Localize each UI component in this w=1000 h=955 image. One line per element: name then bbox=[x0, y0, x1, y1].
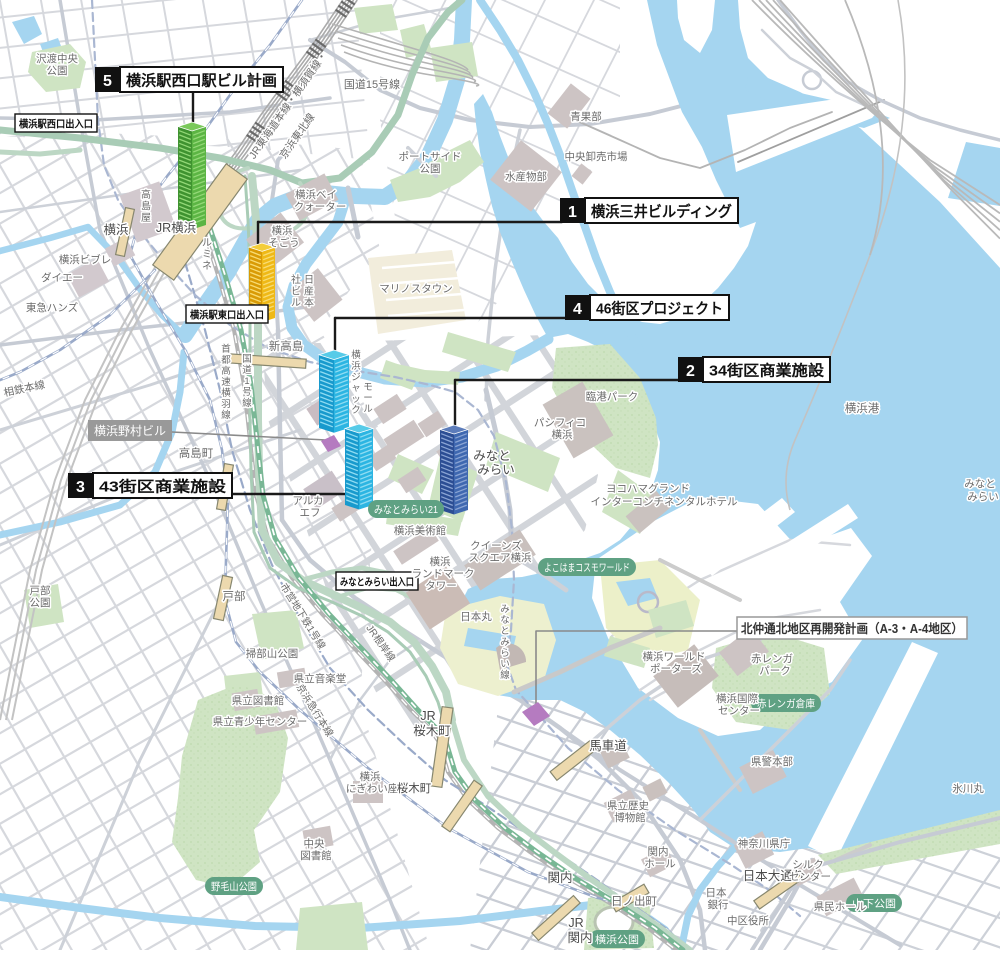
svg-text:日本: 日本 bbox=[706, 886, 727, 899]
svg-text:県立歴史: 県立歴史 bbox=[607, 799, 649, 812]
svg-text:みなとみらい出入口: みなとみらい出入口 bbox=[340, 576, 414, 589]
svg-text:日産本: 日産本 bbox=[304, 275, 314, 309]
svg-text:横浜: 横浜 bbox=[360, 770, 381, 783]
svg-text:桜木町: 桜木町 bbox=[413, 724, 451, 738]
svg-text:アルカ: アルカ bbox=[292, 495, 323, 507]
svg-text:横浜美術館: 横浜美術館 bbox=[394, 524, 447, 537]
svg-text:ヨコハマグランド: ヨコハマグランド bbox=[606, 482, 690, 495]
svg-text:神奈川県庁: 神奈川県庁 bbox=[738, 837, 791, 850]
svg-text:モール: モール bbox=[363, 382, 373, 415]
svg-text:公園: 公園 bbox=[420, 163, 441, 175]
svg-text:東急ハンズ: 東急ハンズ bbox=[26, 301, 78, 314]
svg-text:関内: 関内 bbox=[547, 871, 572, 885]
svg-text:タワー: タワー bbox=[425, 580, 457, 592]
svg-text:野毛山公園: 野毛山公園 bbox=[211, 881, 257, 893]
svg-text:赤レンガ: 赤レンガ bbox=[751, 653, 793, 665]
svg-text:高島屋: 高島屋 bbox=[141, 188, 151, 224]
svg-text:みなとみらい21: みなとみらい21 bbox=[374, 504, 438, 516]
svg-text:横浜: 横浜 bbox=[103, 223, 128, 237]
svg-text:中央: 中央 bbox=[304, 837, 325, 850]
svg-text:氷川丸: 氷川丸 bbox=[952, 782, 984, 795]
svg-text:国道15号線: 国道15号線 bbox=[344, 77, 400, 91]
svg-text:青果部: 青果部 bbox=[570, 110, 602, 123]
svg-text:県民ホール: 県民ホール bbox=[814, 901, 867, 913]
svg-text:横浜ジャック: 横浜ジャック bbox=[351, 349, 361, 416]
svg-text:パシフィコ: パシフィコ bbox=[534, 417, 586, 429]
svg-text:よこはまコスモワールド: よこはまコスモワールド bbox=[544, 562, 630, 574]
svg-text:インターコンチネンタルホテル: インターコンチネンタルホテル bbox=[591, 496, 738, 508]
svg-text:ホール: ホール bbox=[644, 858, 676, 870]
svg-text:センター: センター bbox=[789, 871, 831, 883]
svg-text:ランドマーク: ランドマーク bbox=[412, 568, 475, 580]
svg-text:馬車道: 馬車道 bbox=[589, 739, 627, 753]
svg-text:関内: 関内 bbox=[648, 845, 669, 858]
svg-text:横浜港: 横浜港 bbox=[845, 401, 880, 415]
svg-text:横浜駅西口出入口: 横浜駅西口出入口 bbox=[19, 118, 93, 131]
svg-text:46街区プロジェクト: 46街区プロジェクト bbox=[596, 300, 723, 318]
svg-text:2: 2 bbox=[686, 363, 695, 380]
svg-text:スクエア横浜: スクエア横浜 bbox=[469, 551, 532, 564]
svg-text:横浜駅東口出入口: 横浜駅東口出入口 bbox=[190, 309, 264, 322]
svg-text:横浜ワールド: 横浜ワールド bbox=[643, 650, 706, 663]
svg-text:みなと: みなと bbox=[473, 449, 511, 463]
svg-text:JR横浜: JR横浜 bbox=[156, 221, 196, 235]
svg-text:横浜: 横浜 bbox=[430, 555, 451, 568]
svg-text:マリノスタウン: マリノスタウン bbox=[379, 283, 453, 295]
svg-text:社ビル: 社ビル bbox=[291, 273, 301, 309]
svg-text:戸部: 戸部 bbox=[223, 589, 246, 603]
svg-text:横浜国際: 横浜国際 bbox=[716, 692, 758, 705]
svg-text:臨港パーク: 臨港パーク bbox=[586, 390, 639, 403]
svg-text:横浜ベイ: 横浜ベイ bbox=[295, 188, 337, 201]
svg-text:5: 5 bbox=[103, 73, 112, 90]
svg-text:県立音楽堂: 県立音楽堂 bbox=[294, 672, 347, 685]
svg-text:高島町: 高島町 bbox=[179, 446, 214, 460]
svg-text:北仲通北地区再開発計画（A-3・A-4地区）: 北仲通北地区再開発計画（A-3・A-4地区） bbox=[741, 621, 963, 636]
svg-text:みなと: みなと bbox=[964, 478, 996, 490]
svg-text:県立図書館: 県立図書館 bbox=[232, 694, 285, 707]
svg-text:水産物部: 水産物部 bbox=[505, 170, 547, 183]
svg-text:横浜駅西口駅ビル計画: 横浜駅西口駅ビル計画 bbox=[126, 72, 277, 90]
svg-text:横浜: 横浜 bbox=[552, 428, 573, 441]
svg-text:43街区商業施設: 43街区商業施設 bbox=[99, 478, 227, 496]
svg-text:中区役所: 中区役所 bbox=[727, 914, 769, 927]
svg-text:中央卸売市場: 中央卸売市場 bbox=[565, 150, 628, 163]
svg-text:横浜ビブレ: 横浜ビブレ bbox=[59, 253, 112, 266]
svg-text:JR: JR bbox=[568, 916, 583, 930]
svg-text:戸部: 戸部 bbox=[30, 584, 51, 597]
svg-text:ポートサイド: ポートサイド bbox=[399, 151, 462, 163]
svg-text:1: 1 bbox=[568, 204, 577, 221]
svg-text:県警本部: 県警本部 bbox=[751, 755, 793, 768]
svg-text:公園: 公園 bbox=[47, 65, 68, 77]
svg-text:県立青少年センター: 県立青少年センター bbox=[213, 715, 308, 728]
svg-text:JR: JR bbox=[420, 709, 435, 723]
svg-text:関内: 関内 bbox=[567, 931, 592, 945]
svg-text:みらい: みらい bbox=[477, 463, 515, 477]
svg-text:34街区商業施設: 34街区商業施設 bbox=[709, 362, 825, 380]
svg-text:日本丸: 日本丸 bbox=[460, 610, 492, 623]
svg-text:桜木町: 桜木町 bbox=[397, 781, 432, 795]
svg-text:にぎわい座: にぎわい座 bbox=[346, 782, 399, 795]
svg-text:ルミネ: ルミネ bbox=[202, 238, 212, 272]
svg-text:みらい: みらい bbox=[967, 491, 999, 503]
svg-text:ダイエー: ダイエー bbox=[41, 271, 83, 284]
svg-text:そごう: そごう bbox=[268, 236, 300, 249]
svg-text:みなとみらい線: みなとみらい線 bbox=[500, 604, 510, 681]
svg-text:横浜公園: 横浜公園 bbox=[595, 933, 639, 946]
svg-text:横浜三井ビルディング: 横浜三井ビルディング bbox=[591, 203, 732, 221]
svg-text:パーク: パーク bbox=[759, 665, 791, 677]
svg-text:クォーター: クォーター bbox=[294, 201, 347, 213]
svg-text:図書館: 図書館 bbox=[300, 849, 332, 862]
svg-text:3: 3 bbox=[76, 479, 85, 496]
svg-text:エフ: エフ bbox=[300, 507, 321, 519]
svg-text:センター: センター bbox=[718, 705, 760, 717]
svg-text:沢渡中央: 沢渡中央 bbox=[36, 52, 78, 65]
svg-text:掃部山公園: 掃部山公園 bbox=[246, 647, 299, 660]
svg-text:赤レンガ倉庫: 赤レンガ倉庫 bbox=[757, 697, 815, 710]
svg-text:ポーターズ: ポーターズ bbox=[650, 662, 702, 675]
svg-text:横浜: 横浜 bbox=[272, 224, 293, 237]
svg-text:シルク: シルク bbox=[792, 859, 824, 871]
svg-text:博物館: 博物館 bbox=[614, 811, 646, 824]
svg-text:首都高速横羽線: 首都高速横羽線 bbox=[221, 343, 231, 421]
svg-text:日ノ出町: 日ノ出町 bbox=[611, 894, 657, 908]
svg-text:4: 4 bbox=[573, 301, 582, 318]
svg-text:公園: 公園 bbox=[30, 597, 51, 609]
svg-text:横浜野村ビル: 横浜野村ビル bbox=[94, 424, 166, 438]
svg-text:銀行: 銀行 bbox=[708, 898, 729, 911]
svg-text:新高島: 新高島 bbox=[269, 339, 304, 353]
svg-text:クイーンズ: クイーンズ bbox=[470, 539, 522, 552]
